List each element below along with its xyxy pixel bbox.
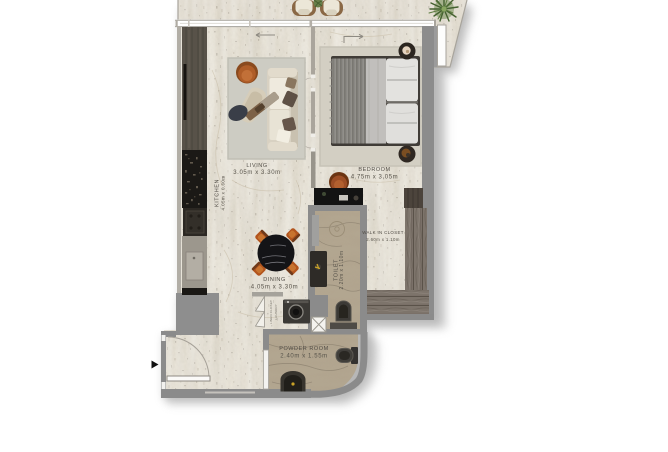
svg-text:POWDER ROOM: POWDER ROOM [279, 346, 328, 352]
svg-text:LAUNDRY: LAUNDRY [274, 304, 278, 320]
svg-text:4.75m x 3.05m: 4.75m x 3.05m [351, 174, 399, 180]
svg-text:2.60m x 1.10m: 2.60m x 1.10m [366, 237, 400, 242]
svg-text:3.05m x 3.30m: 3.05m x 3.30m [233, 170, 281, 176]
svg-text:4.05m x 0.60m: 4.05m x 0.60m [221, 176, 226, 211]
svg-text:LINEN CLOSET: LINEN CLOSET [269, 300, 273, 324]
svg-text:4.05m x 3.30m: 4.05m x 3.30m [251, 284, 299, 290]
svg-text:2.40m x 1.55m: 2.40m x 1.55m [280, 354, 328, 360]
svg-text:DINING: DINING [263, 277, 286, 283]
svg-text:WALK IN CLOSET: WALK IN CLOSET [362, 230, 404, 235]
svg-text:BEDROOM: BEDROOM [358, 167, 390, 173]
svg-text:LIVING: LIVING [246, 163, 267, 169]
svg-text:2.20m x 1.10m: 2.20m x 1.10m [339, 251, 345, 290]
